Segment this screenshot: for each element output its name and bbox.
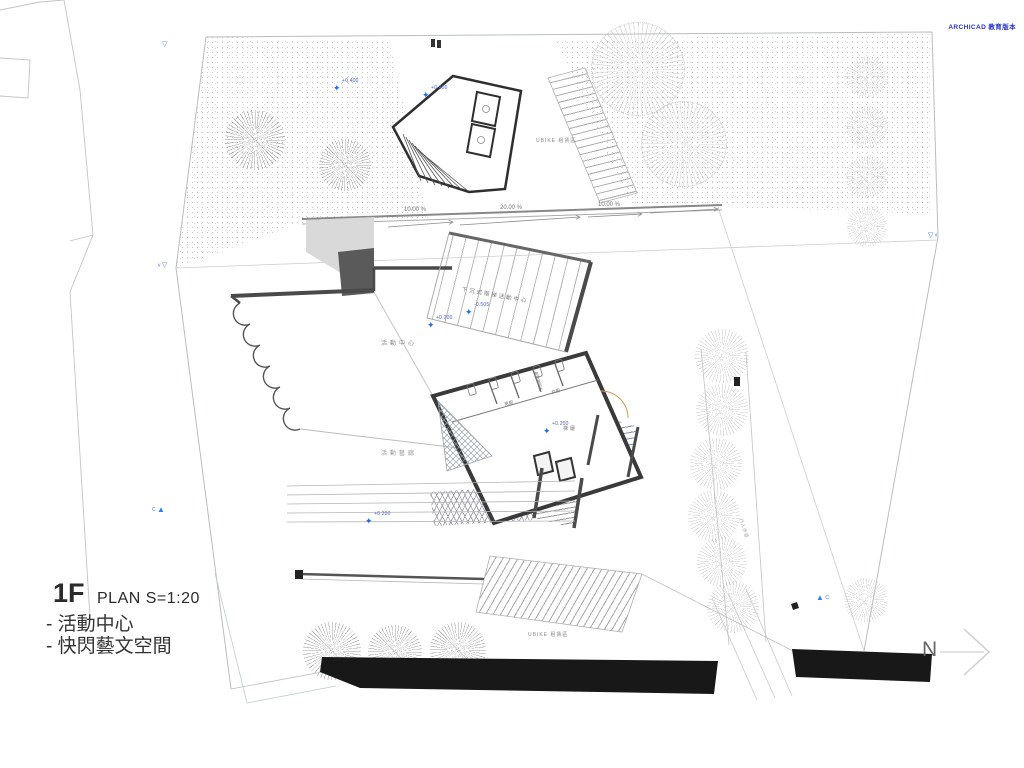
level-value: +0.200 <box>374 511 391 517</box>
datum-triangle-icon: ▽ <box>162 41 167 48</box>
datum-triangle-icon: ▽ <box>162 262 167 269</box>
level-marker: ✦ +0.200 <box>365 511 425 529</box>
slope-label: 10.00 % <box>404 207 426 213</box>
archicad-watermark: ARCHICAD 教育版本 <box>948 25 1016 32</box>
label-ubike-bottom: UBIKE 租賃區 <box>528 633 568 638</box>
level-value: +0.400 <box>431 85 448 91</box>
level-star-icon: ✦ <box>365 517 373 526</box>
level-value: +0.200 <box>436 315 453 321</box>
section-letter: C <box>152 507 156 513</box>
level-star-icon: ✦ <box>543 427 551 436</box>
level-marker: ✦ +0.400 <box>333 78 393 96</box>
black-road-bands <box>320 377 932 694</box>
section-letter: C <box>825 595 829 601</box>
level-value: +0.400 <box>342 78 359 84</box>
level-marker: ✦ +0.200 <box>543 421 603 439</box>
level-star-icon: ✦ <box>427 321 435 330</box>
datum-triangle-icon: ▽ <box>928 232 933 239</box>
north-arrow-icon <box>940 629 989 675</box>
datum-letter: v <box>935 232 938 238</box>
small-building <box>393 39 521 192</box>
level-star-icon: ✦ <box>333 84 341 93</box>
plan-scale-title: PLAN S=1:20 <box>97 591 200 607</box>
datum-letter: v <box>158 262 161 268</box>
label-activity-center: 活動中心 <box>381 341 417 347</box>
north-label: N <box>922 639 937 660</box>
section-marker-c: C ▲ <box>152 505 165 514</box>
datum-marker: ▽ v <box>928 231 937 239</box>
level-value: +0.200 <box>552 421 569 427</box>
road-lines <box>642 349 793 700</box>
label-ubike-top: UBIKE 租賃區 <box>536 139 576 144</box>
datum-marker: v ▽ <box>158 261 167 269</box>
level-marker: ✦ +0.400 <box>422 85 482 103</box>
slope-label: 10.00 % <box>598 202 620 208</box>
section-triangle-icon: ▲ <box>816 593 824 602</box>
datum-marker: ▽ <box>162 40 167 48</box>
neighbor-outlines <box>0 0 93 618</box>
slope-label: 20.00 % <box>500 205 522 211</box>
level-marker: ✦ -0.505 <box>465 302 525 320</box>
program-line-1: - 活動中心 <box>46 615 134 634</box>
section-triangle-icon: ▲ <box>157 505 165 514</box>
floor-plan-canvas: 活動中心 下沉式階梯活動中心 活動藝廊 梯廳 男廁 女廁 無障礙廁所 UBIKE… <box>0 0 1024 768</box>
level-value: -0.505 <box>474 302 489 308</box>
section-marker-c: ▲ C <box>816 593 829 602</box>
level-star-icon: ✦ <box>422 91 430 100</box>
program-line-2: - 快閃藝文空間 <box>46 637 172 656</box>
level-star-icon: ✦ <box>465 308 473 317</box>
label-activity-gallery: 活動藝廊 <box>381 451 417 457</box>
floor-title: 1F <box>53 580 85 607</box>
